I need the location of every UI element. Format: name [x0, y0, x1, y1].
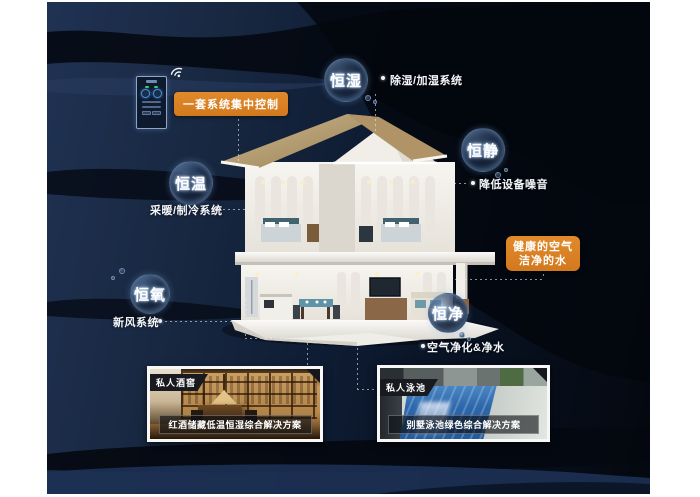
pool-photo: 私人泳池 别墅泳池绿色综合解决方案 [380, 368, 547, 439]
bubble-heng-wen: 恒温 [169, 161, 213, 205]
bubble-title: 恒净 [432, 303, 464, 324]
poster-background: 一套系统集中控制 恒湿 除湿/加湿系统 恒静 降低设备噪音 恒温 采暖/制冷系统… [47, 2, 650, 494]
card-caption: 红酒储藏低温恒湿综合解决方案 [159, 415, 312, 434]
connector-line [245, 338, 307, 339]
connector-line [245, 299, 246, 339]
card-wine-cellar: 私人酒窖 红酒储藏低温恒湿综合解决方案 [147, 366, 323, 442]
connector-dot [381, 76, 385, 80]
poster-page: 一套系统集中控制 恒湿 除湿/加湿系统 恒静 降低设备噪音 恒温 采暖/制冷系统… [0, 0, 700, 497]
corner-fold-icon [306, 369, 320, 383]
label-heng-jin-sub: 空气净化&净水 [427, 339, 504, 355]
connector-line [165, 321, 245, 322]
connector-dot [471, 181, 475, 185]
bubble-title: 恒静 [467, 140, 499, 161]
mini-bubble [365, 95, 371, 101]
label-heng-wen-sub: 采暖/制冷系统 [150, 202, 223, 218]
card-pool: 私人泳池 别墅泳池绿色综合解决方案 [377, 365, 550, 442]
bubble-heng-shi: 恒湿 [324, 58, 368, 102]
card-caption: 别墅泳池绿色综合解决方案 [388, 415, 538, 434]
mini-bubble [119, 268, 125, 274]
bubble-title: 恒湿 [330, 70, 362, 91]
corner-fold-icon [533, 368, 547, 382]
bubble-heng-jing: 恒静 [461, 128, 505, 172]
panel-buttons [142, 111, 161, 115]
bubble-heng-yang: 恒氧 [130, 274, 170, 314]
bubble-title: 恒温 [175, 173, 207, 194]
panel-dials [140, 89, 163, 98]
wine-lamp [211, 390, 237, 404]
connector-line [409, 183, 469, 184]
label-heng-shi-sub: 除湿/加湿系统 [390, 72, 463, 88]
connector-line [357, 328, 358, 389]
connector-line [307, 338, 308, 366]
house-ground-floor [241, 265, 453, 321]
mini-bubble [459, 332, 465, 338]
label-heng-jing-sub: 降低设备噪音 [479, 176, 548, 192]
panel-header-bar [146, 80, 157, 83]
central-control-label: 一套系统集中控制 [174, 92, 288, 116]
connector-line [238, 109, 239, 164]
house-roof [221, 114, 447, 168]
wine-cellar-photo: 私人酒窖 红酒储藏低温恒湿综合解决方案 [150, 369, 320, 439]
bubble-heng-jin: 恒净 [428, 293, 468, 333]
highlight-line1: 健康的空气 [513, 240, 573, 254]
connector-dot [421, 344, 425, 348]
panel-status-lights [142, 86, 161, 88]
bubble-title: 恒氧 [134, 284, 166, 305]
house-second-floor [243, 162, 471, 264]
connector-line [375, 94, 376, 163]
highlight-line2: 洁净的水 [519, 254, 567, 268]
connector-line [223, 209, 283, 210]
mini-bubble [504, 168, 508, 172]
connector-line [445, 279, 544, 280]
label-heng-yang-sub: 新风系统 [113, 314, 159, 330]
smart-control-panel [136, 76, 167, 129]
panel-text-row [142, 106, 161, 108]
mini-bubble [373, 100, 377, 104]
connector-line [357, 389, 379, 390]
panel-text-row [142, 101, 161, 103]
highlight-box: 健康的空气 洁净的水 [506, 236, 580, 271]
mini-bubble [111, 276, 115, 280]
